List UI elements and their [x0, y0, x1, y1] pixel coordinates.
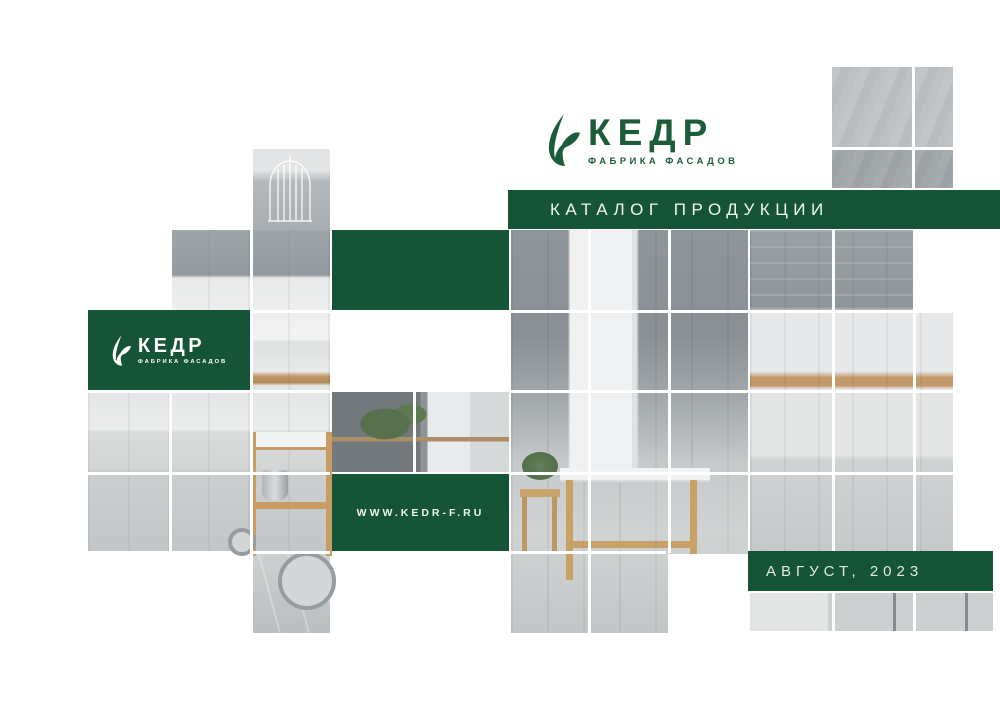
stool [520, 489, 560, 497]
grid-line [88, 390, 330, 393]
white-mask [668, 554, 748, 633]
stool-leg [522, 497, 527, 553]
grid-line [832, 593, 835, 631]
potted-plant [522, 452, 558, 480]
grid-line [913, 593, 916, 631]
grid-line [750, 390, 953, 393]
brand-logo: КЕДР ФАБРИКА ФАСАДОВ [546, 114, 738, 167]
island-table-leg [566, 480, 573, 580]
issue-date-block: АВГУСТ, 2023 [748, 551, 993, 591]
ceiling-photo-tile [832, 67, 953, 188]
barstools-photo-tile [750, 593, 993, 631]
grid-line [511, 551, 666, 554]
grid-line [588, 230, 591, 633]
grid-line [832, 147, 953, 150]
grid-line [750, 310, 953, 313]
grid-line [88, 472, 330, 475]
plant-photo-tile [332, 392, 509, 472]
grid-line [511, 310, 748, 313]
side-logo-title: КЕДР [138, 336, 227, 356]
cedar-leaf-icon [111, 335, 131, 366]
grid-line [511, 472, 748, 475]
serving-cart-shelf [250, 502, 332, 509]
catalog-banner: КАТАЛОГ ПРОДУКЦИИ [508, 190, 1000, 229]
stool-leg [552, 497, 557, 553]
grid-line [750, 472, 953, 475]
side-logo-subtitle: ФАБРИКА ФАСАДОВ [138, 359, 227, 365]
island-table-shelf [566, 541, 697, 548]
white-mask [913, 230, 953, 310]
catalog-cover: КАТАЛОГ ПРОДУКЦИИ WWW.KEDR-F.RU АВГУСТ, … [0, 0, 1000, 702]
brand-title: КЕДР [588, 114, 738, 151]
grid-line [912, 67, 915, 188]
grid-line [511, 390, 748, 393]
birdcage-photo-tile [250, 149, 330, 230]
white-mask [88, 230, 170, 310]
brand-subtitle: ФАБРИКА ФАСАДОВ [588, 156, 738, 167]
catalog-banner-label: КАТАЛОГ ПРОДУКЦИИ [508, 200, 829, 220]
website-block: WWW.KEDR-F.RU [332, 474, 509, 551]
cedar-leaf-icon [546, 114, 580, 166]
serving-cart-tray [250, 432, 332, 450]
island-table-top [560, 468, 710, 482]
cart-wheel [278, 552, 336, 610]
website-label: WWW.KEDR-F.RU [357, 507, 485, 519]
side-logo-badge: КЕДР ФАБРИКА ФАСАДОВ [88, 310, 250, 390]
birdcage-icon [266, 155, 314, 225]
issue-date-label: АВГУСТ, 2023 [748, 563, 923, 580]
green-accent-block [332, 230, 509, 310]
grid-line [250, 551, 330, 554]
grid-line [413, 392, 416, 472]
